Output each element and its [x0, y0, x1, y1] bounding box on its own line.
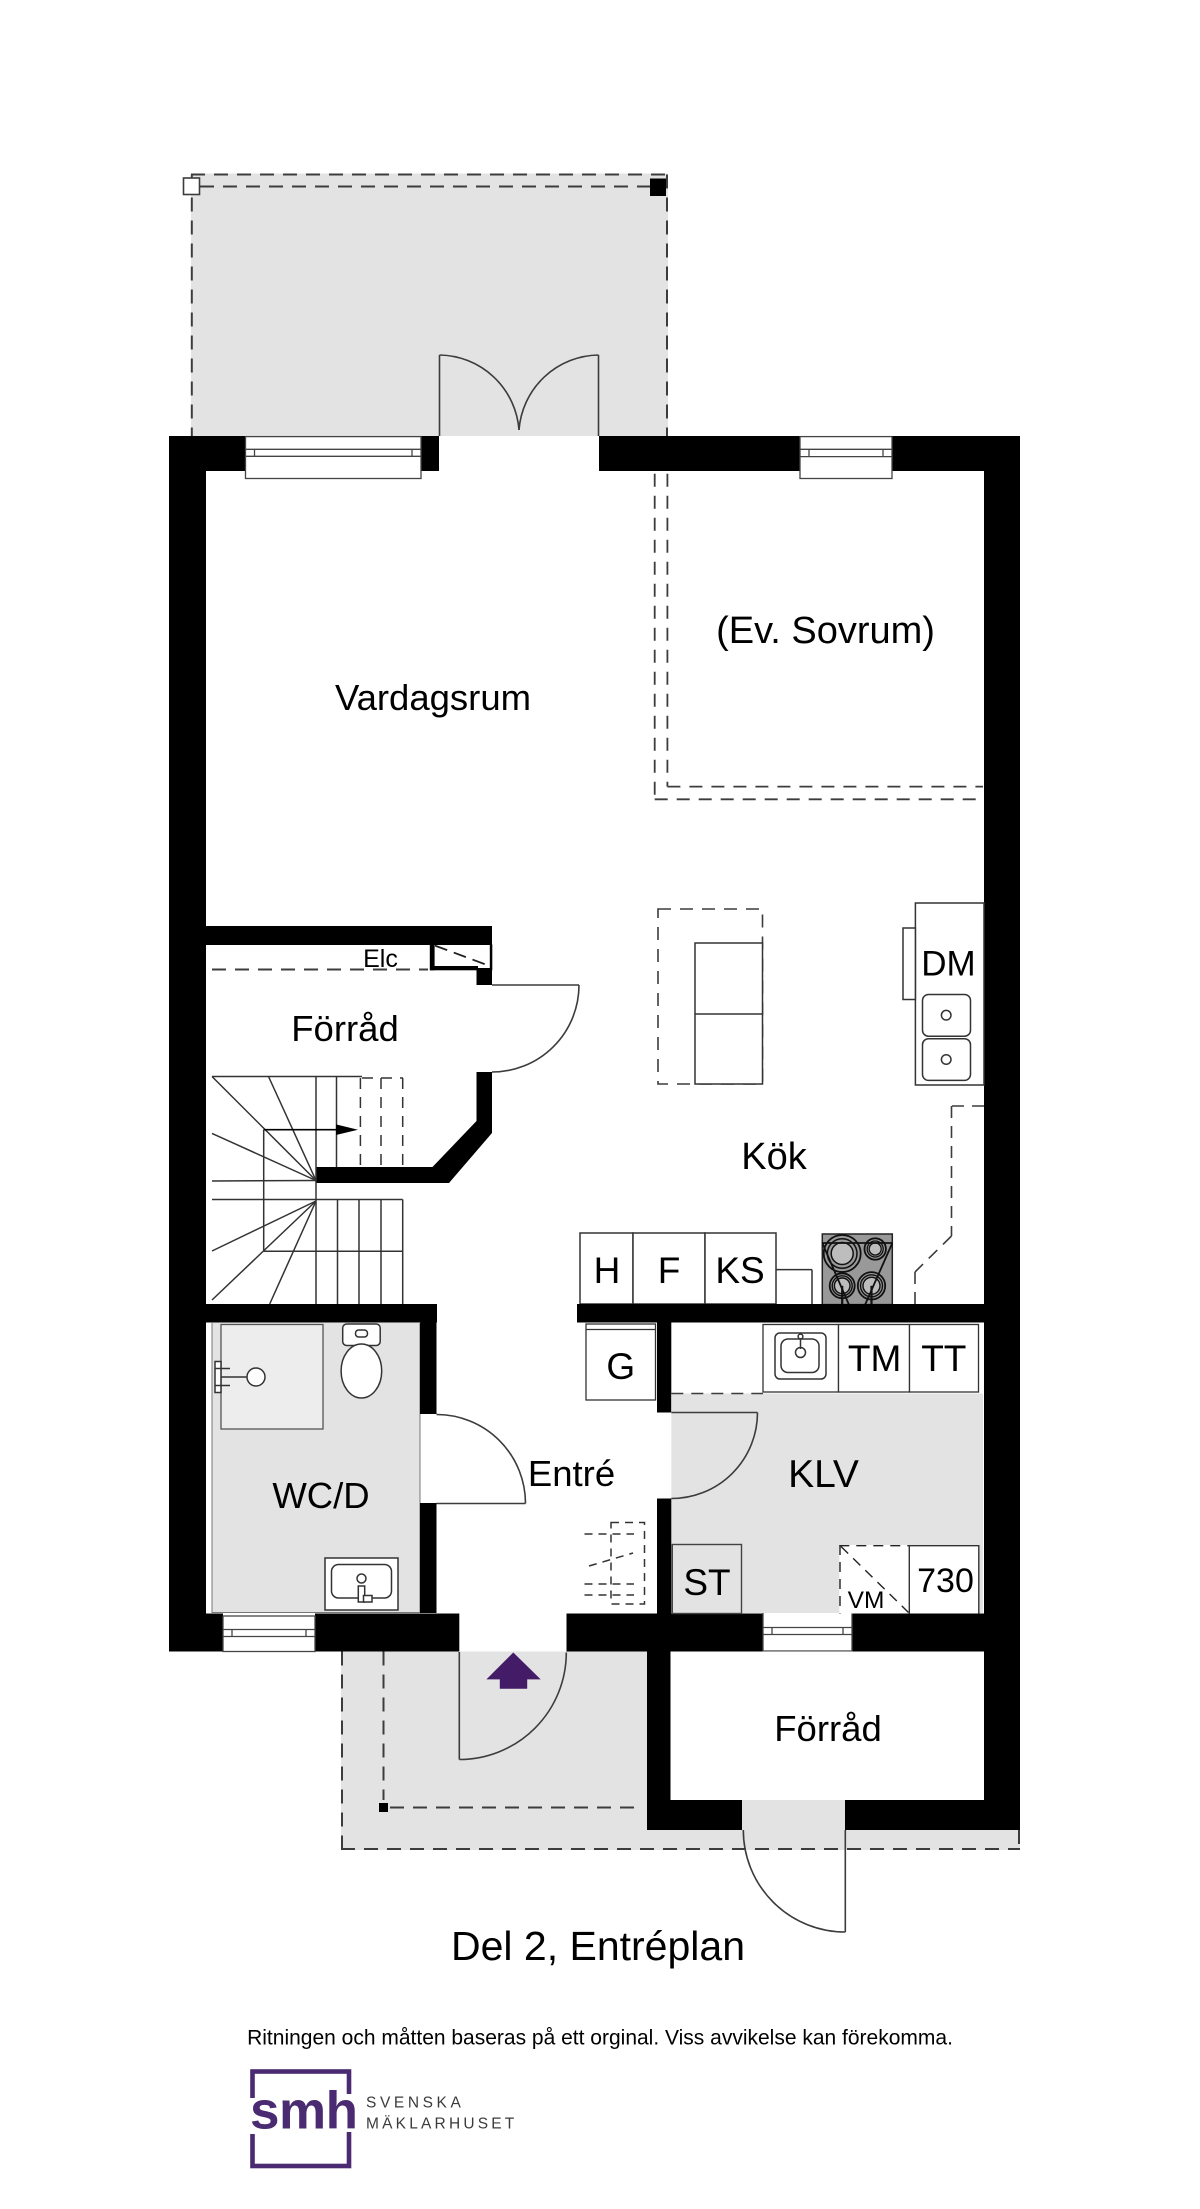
svg-text:Kök: Kök — [741, 1136, 807, 1178]
svg-text:Ritningen och måtten baseras p: Ritningen och måtten baseras på ett orgi… — [247, 2027, 953, 2050]
svg-text:(Ev. Sovrum): (Ev. Sovrum) — [716, 610, 935, 652]
svg-text:VM: VM — [848, 1587, 885, 1614]
svg-text:WC/D: WC/D — [272, 1475, 369, 1516]
svg-text:Förråd: Förråd — [291, 1008, 399, 1049]
svg-text:Förråd: Förråd — [774, 1708, 882, 1749]
svg-text:KS: KS — [715, 1250, 764, 1291]
svg-text:TM: TM — [848, 1338, 901, 1379]
svg-text:H: H — [594, 1250, 621, 1291]
svg-text:Vardagsrum: Vardagsrum — [335, 677, 531, 718]
svg-text:KLV: KLV — [788, 1453, 859, 1496]
svg-text:smh: smh — [250, 2082, 357, 2141]
svg-text:TT: TT — [921, 1338, 966, 1379]
svg-text:DM: DM — [921, 945, 975, 984]
svg-text:730: 730 — [917, 1562, 974, 1600]
svg-text:Del 2, Entréplan: Del 2, Entréplan — [451, 1923, 745, 1969]
svg-text:MÄKLARHUSET: MÄKLARHUSET — [366, 2116, 517, 2133]
svg-text:F: F — [658, 1250, 681, 1291]
svg-text:SVENSKA: SVENSKA — [366, 2095, 464, 2112]
svg-text:ST: ST — [683, 1562, 730, 1603]
svg-text:G: G — [606, 1346, 635, 1387]
svg-text:Entré: Entré — [528, 1453, 615, 1494]
